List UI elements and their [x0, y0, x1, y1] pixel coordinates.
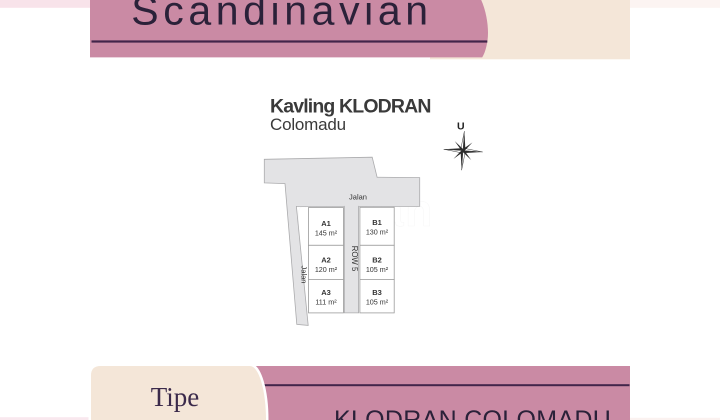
svg-text:Scandinavian: Scandinavian	[131, 0, 432, 34]
svg-text:B3: B3	[372, 288, 382, 297]
svg-text:120 m²: 120 m²	[315, 265, 338, 274]
svg-text:145 m²: 145 m²	[315, 229, 338, 238]
svg-text:A3: A3	[321, 288, 331, 297]
svg-text:Jalan: Jalan	[299, 266, 308, 284]
svg-text:A2: A2	[321, 256, 331, 265]
svg-text:B1: B1	[372, 218, 382, 227]
svg-text:B2: B2	[372, 256, 382, 265]
svg-text:Tipe: Tipe	[151, 382, 200, 412]
svg-text:Colomadu: Colomadu	[270, 115, 346, 134]
svg-text:U: U	[457, 121, 465, 133]
svg-text:111 m²: 111 m²	[315, 298, 337, 307]
svg-text:ROW 5: ROW 5	[350, 246, 359, 272]
svg-text:KLODRAN COLOMADU: KLODRAN COLOMADU	[334, 406, 611, 420]
svg-text:A1: A1	[321, 219, 331, 228]
svg-text:130 m²: 130 m²	[366, 228, 389, 237]
svg-text:105 m²: 105 m²	[366, 265, 389, 274]
svg-text:105 m²: 105 m²	[366, 298, 389, 307]
svg-text:Jalan: Jalan	[349, 192, 367, 201]
